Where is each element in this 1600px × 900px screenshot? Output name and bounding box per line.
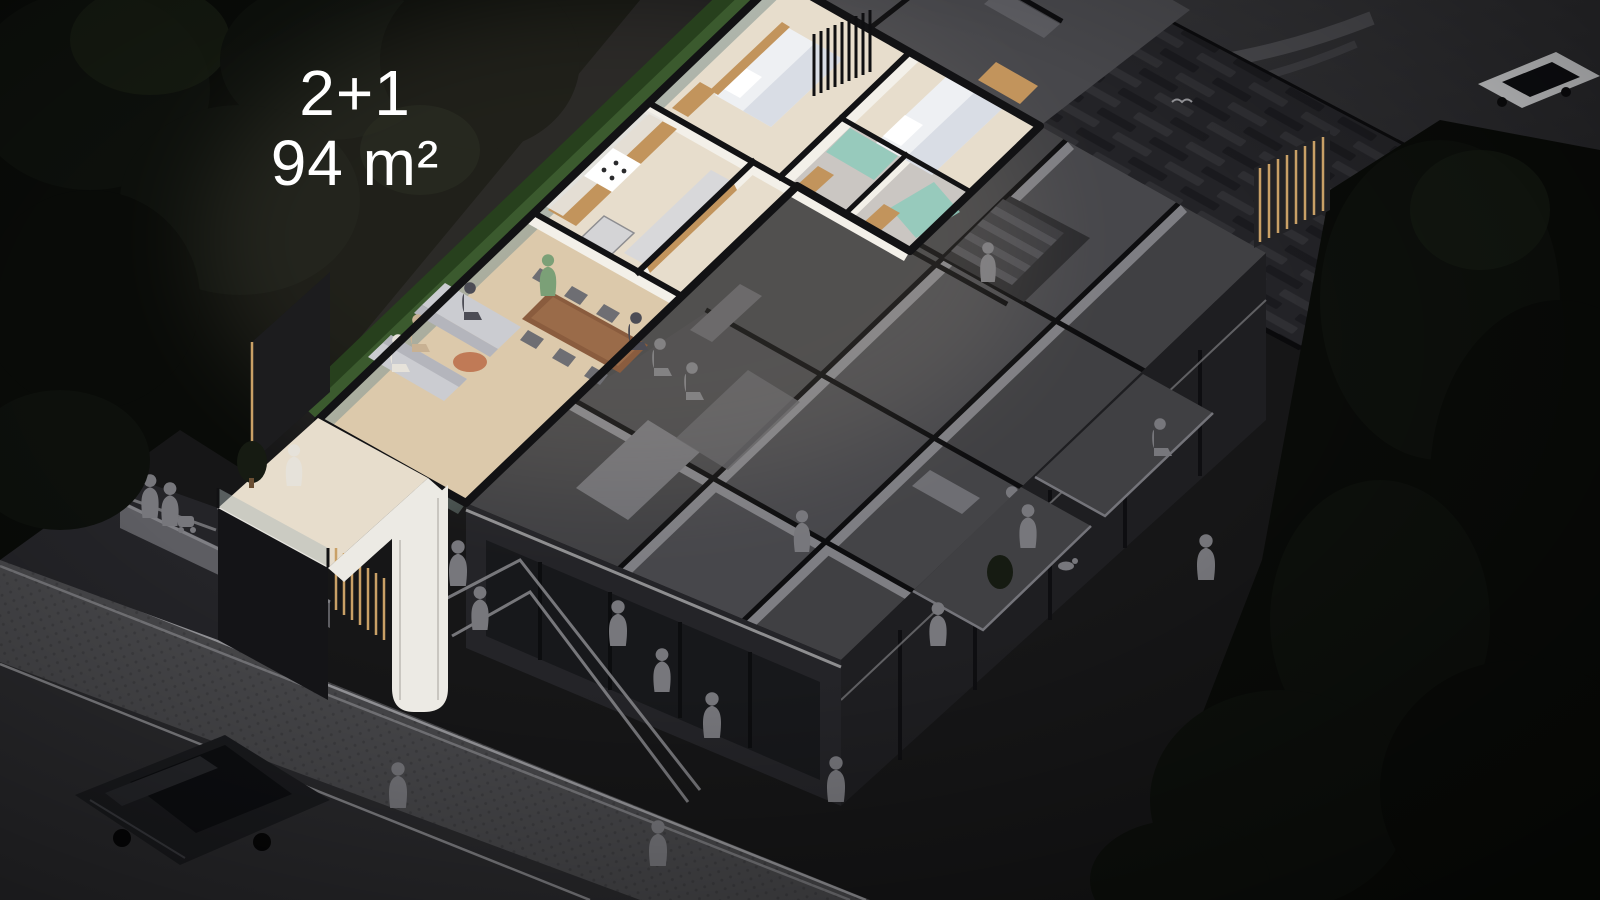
balcony-tree (237, 441, 267, 483)
unit-area-text: 94 m² (195, 128, 515, 198)
unit-type-text: 2+1 (195, 58, 515, 128)
render-canvas: 2+1 94 m² (0, 0, 1600, 900)
unit-label: 2+1 94 m² (195, 58, 515, 199)
balcony-person (286, 444, 302, 486)
coffee-table (453, 352, 487, 372)
